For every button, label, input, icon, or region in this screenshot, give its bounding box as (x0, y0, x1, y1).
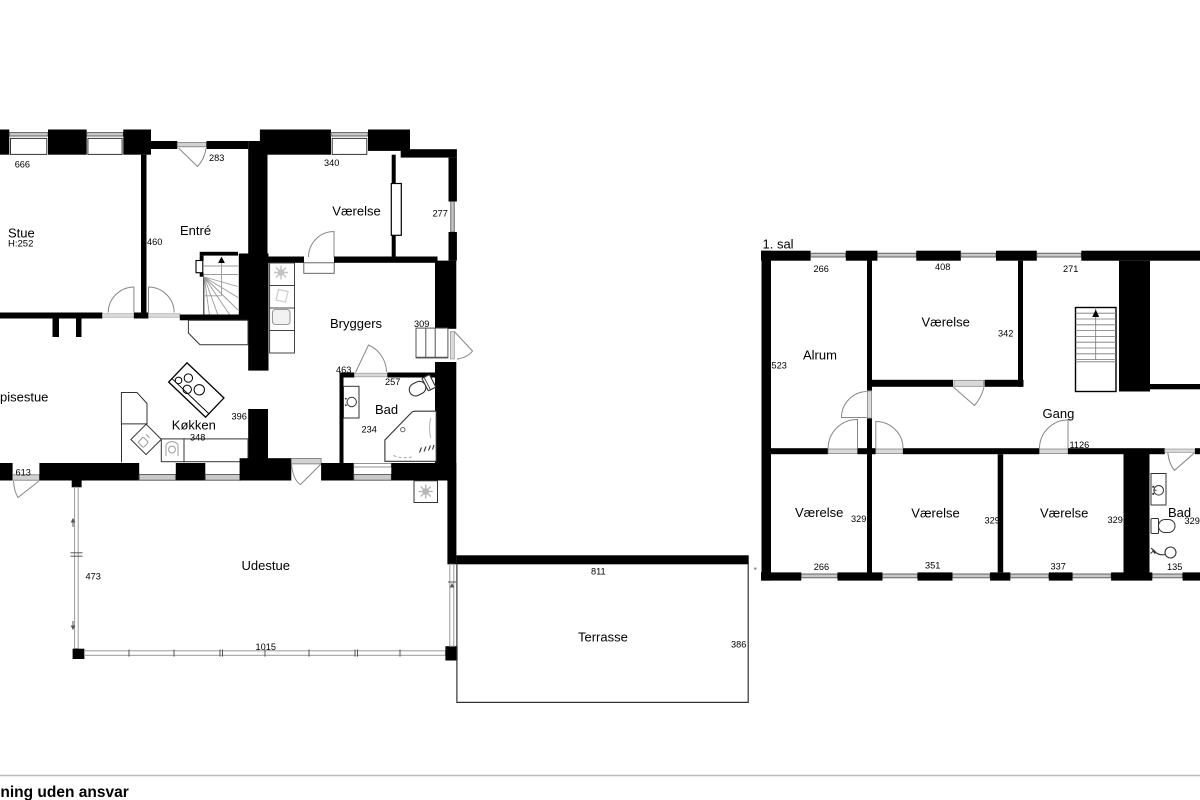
svg-text:666: 666 (15, 160, 30, 170)
svg-text:266: 266 (814, 264, 829, 274)
svg-text:329: 329 (851, 514, 866, 524)
svg-text:386: 386 (731, 640, 746, 650)
svg-text:Værelse: Værelse (795, 505, 843, 520)
svg-text:811: 811 (591, 567, 606, 577)
svg-text:523: 523 (772, 361, 787, 371)
svg-text:613: 613 (16, 468, 31, 478)
svg-text:460: 460 (147, 237, 162, 247)
svg-text:266: 266 (814, 562, 829, 572)
svg-text:Spisestue: Spisestue (0, 390, 48, 405)
svg-text:337: 337 (1051, 562, 1066, 572)
svg-text:283: 283 (209, 153, 224, 163)
svg-text:H:252: H:252 (8, 239, 33, 250)
svg-text:Gang: Gang (1043, 406, 1075, 421)
svg-text:Bryggers: Bryggers (330, 316, 383, 331)
svg-text:348: 348 (190, 433, 205, 443)
svg-text:473: 473 (86, 572, 101, 582)
svg-text:Værelse: Værelse (1040, 506, 1088, 521)
svg-text:135: 135 (1167, 562, 1182, 572)
svg-text:340: 340 (324, 158, 339, 168)
svg-text:234: 234 (362, 425, 377, 435)
svg-text:329: 329 (1185, 516, 1200, 526)
svg-text:Terrasse: Terrasse (578, 630, 628, 645)
svg-text:408: 408 (935, 262, 950, 272)
svg-text:Bad: Bad (375, 402, 398, 417)
svg-text:1126: 1126 (1070, 440, 1090, 450)
svg-text:277: 277 (433, 209, 448, 219)
svg-text:351: 351 (925, 561, 940, 571)
svg-text:Entré: Entré (180, 223, 211, 238)
svg-text:Værelse: Værelse (911, 506, 959, 521)
svg-text:Udestue: Udestue (242, 558, 290, 573)
svg-text:329: 329 (1108, 515, 1123, 525)
svg-text:1. sal: 1. sal (763, 237, 794, 252)
svg-text:Alrum: Alrum (803, 348, 837, 363)
svg-text:Tegning uden ansvar: Tegning uden ansvar (0, 784, 129, 800)
svg-text:271: 271 (1063, 264, 1078, 274)
svg-text:342: 342 (998, 329, 1013, 339)
svg-text:257: 257 (385, 377, 400, 387)
svg-text:463: 463 (336, 365, 351, 375)
svg-text:1015: 1015 (256, 642, 276, 652)
svg-text:Køkken: Køkken (172, 417, 216, 432)
svg-text:396: 396 (232, 412, 247, 422)
svg-text:Værelse: Værelse (922, 315, 970, 330)
svg-text:329: 329 (985, 516, 1000, 526)
svg-text:309: 309 (414, 319, 429, 329)
svg-text:Værelse: Værelse (332, 203, 380, 218)
